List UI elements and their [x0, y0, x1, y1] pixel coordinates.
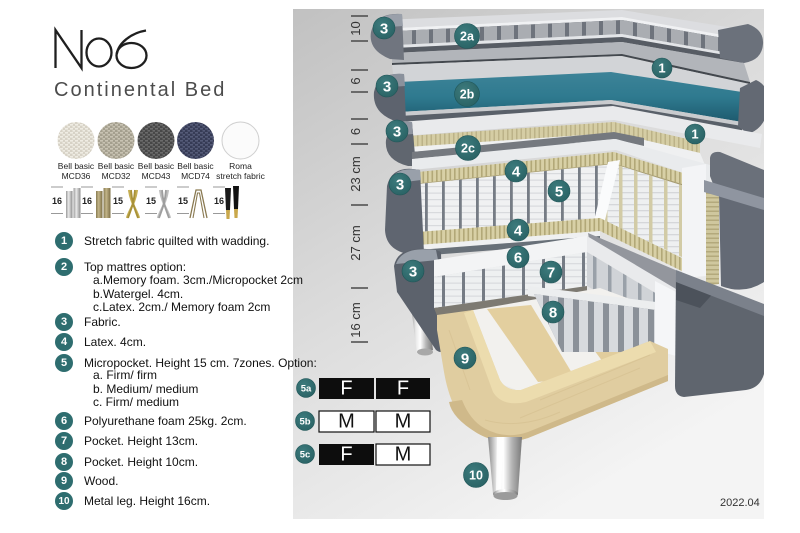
svg-text:6: 6 [348, 77, 363, 84]
svg-text:stretch fabric: stretch fabric [216, 171, 265, 181]
svg-text:5b: 5b [299, 416, 310, 427]
svg-text:27 cm: 27 cm [348, 225, 363, 260]
svg-text:Continental Bed: Continental Bed [54, 79, 226, 101]
svg-text:Bell basic: Bell basic [177, 161, 214, 171]
svg-text:4: 4 [512, 163, 521, 180]
svg-text:Bell basic: Bell basic [98, 161, 135, 171]
svg-text:3: 3 [393, 123, 401, 140]
svg-text:M: M [338, 411, 355, 433]
svg-text:3: 3 [409, 263, 417, 280]
svg-text:4: 4 [514, 222, 523, 239]
svg-text:F: F [397, 378, 409, 400]
svg-text:23 cm: 23 cm [348, 156, 363, 191]
svg-text:5: 5 [555, 183, 563, 200]
svg-text:MCD74: MCD74 [181, 171, 210, 181]
svg-text:15: 15 [146, 196, 156, 206]
svg-text:3: 3 [396, 176, 404, 193]
svg-text:Bell basic: Bell basic [58, 161, 95, 171]
svg-text:10: 10 [469, 469, 483, 483]
svg-text:10: 10 [348, 21, 363, 35]
svg-text:16: 16 [82, 196, 92, 206]
svg-text:MCD43: MCD43 [142, 171, 171, 181]
svg-text:2b: 2b [460, 88, 475, 102]
svg-text:8: 8 [549, 304, 557, 321]
svg-text:2a: 2a [460, 30, 475, 44]
svg-text:M: M [395, 411, 412, 433]
svg-text:F: F [340, 378, 352, 400]
svg-text:M: M [395, 444, 412, 466]
svg-text:1: 1 [691, 127, 698, 142]
svg-text:MCD36: MCD36 [62, 171, 91, 181]
svg-text:6: 6 [348, 128, 363, 135]
svg-text:MCD32: MCD32 [102, 171, 131, 181]
svg-text:Roma: Roma [229, 161, 252, 171]
svg-text:3: 3 [380, 20, 388, 37]
svg-text:1: 1 [658, 61, 665, 76]
svg-text:16: 16 [52, 196, 62, 206]
svg-text:3: 3 [383, 78, 391, 95]
svg-text:15: 15 [178, 196, 188, 206]
svg-text:15: 15 [113, 196, 123, 206]
svg-text:16: 16 [214, 196, 224, 206]
svg-text:16 cm: 16 cm [348, 302, 363, 337]
svg-text:7: 7 [547, 264, 555, 281]
svg-text:F: F [340, 444, 352, 466]
svg-text:5c: 5c [300, 449, 311, 460]
svg-text:2022.04: 2022.04 [720, 497, 760, 509]
svg-text:6: 6 [514, 249, 522, 266]
svg-text:5a: 5a [301, 383, 312, 394]
svg-text:Bell basic: Bell basic [138, 161, 175, 171]
svg-text:9: 9 [461, 350, 469, 367]
svg-text:2c: 2c [461, 142, 475, 156]
